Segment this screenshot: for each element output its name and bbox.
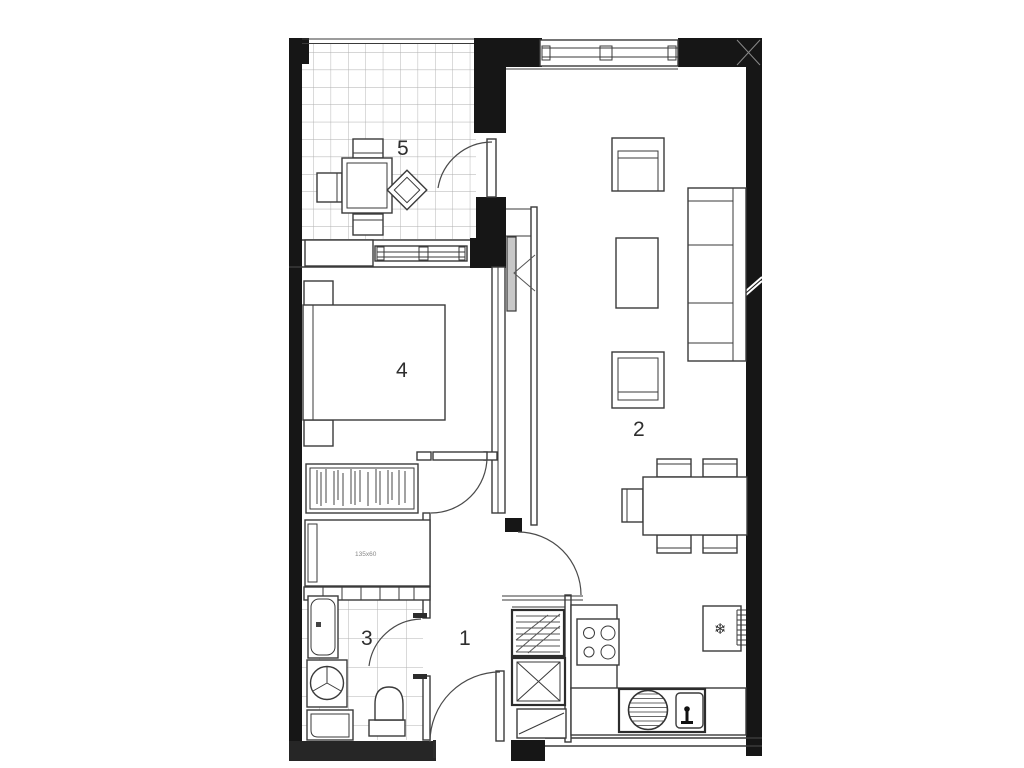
dining-chair-top-2 [703,459,737,477]
balcony-bedroom-wall [289,238,506,268]
dining-set [622,459,747,553]
outdoor-chair-left [317,173,342,202]
nightstand-bottom [304,420,333,446]
living-room-left-wall [531,207,537,525]
wall-bottom-left [289,741,436,761]
outdoor-table [342,158,392,213]
room-label-bathroom: 3 [361,627,373,650]
low-cabinet [305,240,373,266]
room-label-hall: 1 [459,627,471,650]
wall-balcony-living-top [474,38,506,133]
hall-shaft-cabinet [512,658,565,705]
outdoor-chair-bottom [353,214,383,235]
sofa [688,188,746,361]
room-label-balcony: 5 [397,137,409,160]
room-label-living: 2 [633,418,645,441]
wall-end-cap [505,518,522,532]
wall-left [289,38,302,760]
washing-machine [307,660,347,707]
round-basin [629,691,668,730]
fridge: ❄ [703,606,746,651]
wardrobe [306,464,418,513]
dining-chair-left [622,489,643,522]
bedroom-hall-wall-left [417,452,431,460]
entry-door-jamb [433,740,436,758]
armchair-top [612,138,664,191]
armchair-bottom [612,352,664,408]
entry-threshold [511,740,545,761]
dining-chair-bottom-1 [657,535,691,553]
room-label-bedroom: 4 [396,359,408,382]
balcony-top-edge [302,39,476,44]
dining-chair-top-1 [657,459,691,477]
bathtub-drain [316,622,321,627]
bedroom-furniture: 135x60 [303,281,445,600]
bath-door-jamb-top [413,613,427,618]
bath-hall-wall-lower [423,676,430,740]
living-room-door [518,532,581,595]
bedroom-door [431,452,487,513]
bedroom-window [375,246,467,261]
wall-right [746,38,762,756]
kitchen: ❄ [571,605,746,735]
coffee-table [616,238,658,308]
hall-wardrobe [512,610,564,656]
stove [577,619,619,665]
bathtub [308,596,338,658]
snowflake-icon: ❄ [714,620,727,638]
entrance-door [430,671,504,742]
floor-plan: 135x60 [0,0,1024,768]
floor-plan-canvas: 135x60 [0,0,1024,768]
nightstand-top [304,281,333,306]
bathroom-vanity [307,710,353,740]
wall-corner-top-left [289,38,309,64]
hall-shelf [517,709,566,738]
dresser: 135x60 [305,520,430,586]
kitchen-sink [619,689,705,732]
bath-door-jamb-bottom [413,674,427,679]
dining-chair-bottom-2 [703,535,737,553]
hall-cabinets [512,610,566,738]
bed [303,305,445,420]
wall-top-segment-1 [506,38,542,67]
dining-table [643,477,747,535]
wall-bottom-right [545,738,762,746]
living-room-furniture [612,138,747,553]
dresser-size-label: 135x60 [355,551,377,558]
outdoor-chair-top [353,139,383,158]
